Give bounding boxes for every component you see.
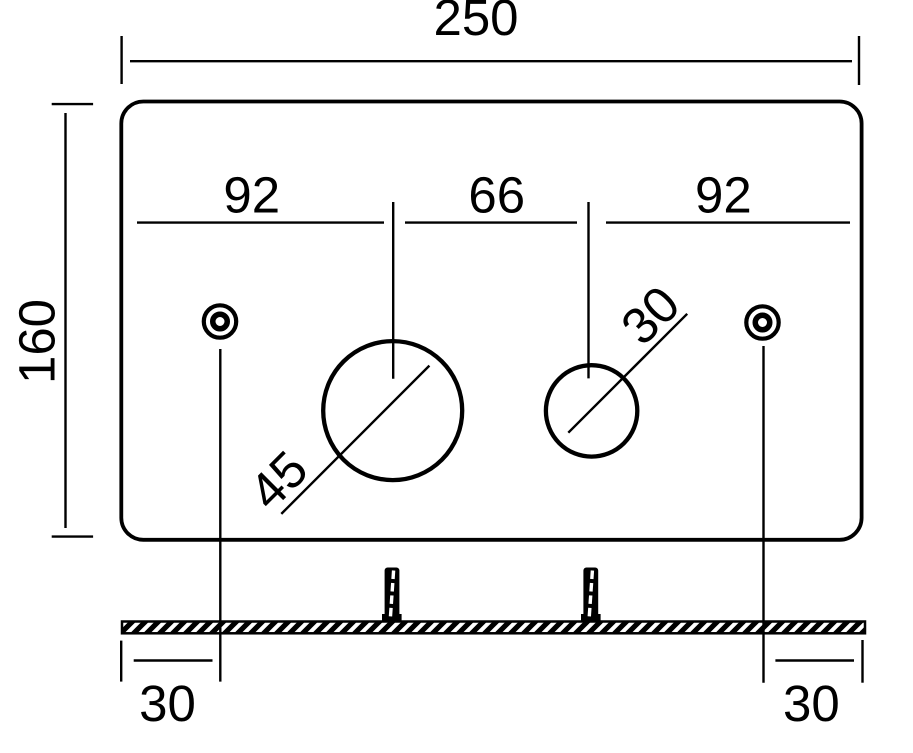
svg-text:30: 30	[783, 675, 840, 732]
svg-text:160: 160	[9, 299, 66, 384]
svg-text:30: 30	[139, 675, 196, 732]
svg-text:250: 250	[433, 0, 518, 46]
svg-text:66: 66	[468, 167, 525, 224]
svg-text:92: 92	[695, 167, 752, 224]
svg-text:92: 92	[223, 167, 280, 224]
